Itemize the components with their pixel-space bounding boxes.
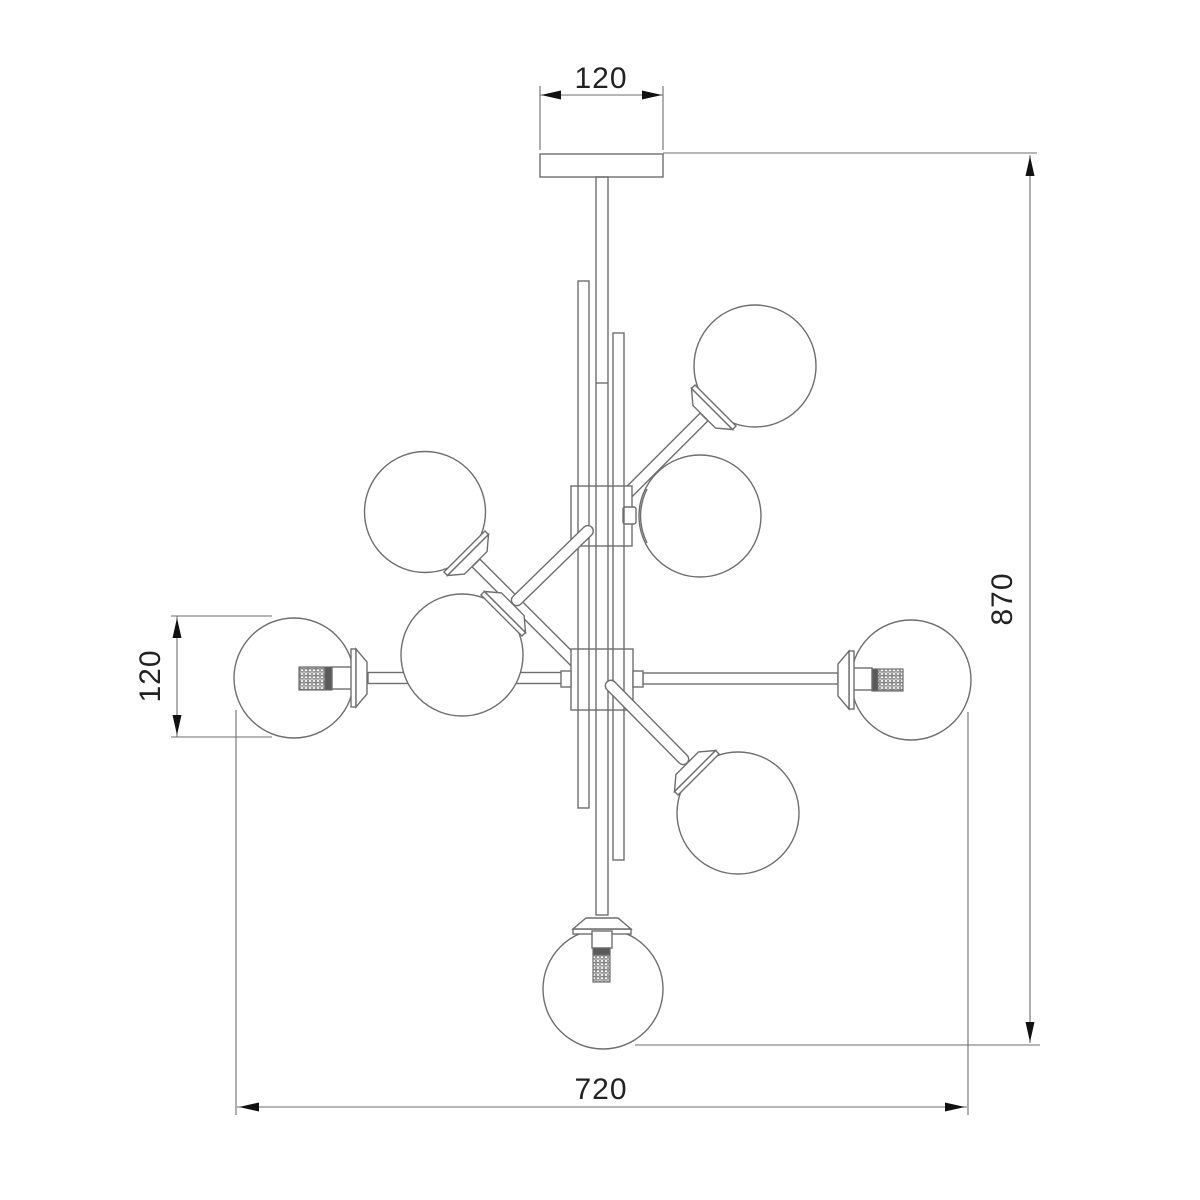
arrowhead-left-icon — [239, 1103, 259, 1112]
socket-holder — [592, 931, 612, 948]
upper-box-right-connector — [623, 507, 636, 524]
lower-box-left-connector — [561, 671, 571, 687]
canopy-width-label: 120 — [574, 62, 627, 95]
total-height-label: 870 — [986, 572, 1019, 625]
dimension-total-height: 870 — [635, 153, 1040, 1045]
socket-holder — [332, 667, 352, 689]
ceiling-plate — [540, 154, 663, 177]
technical-drawing-canvas: 120 870 120 720 — [0, 0, 1200, 1200]
bell-flange — [351, 649, 367, 707]
bulb-base-collar — [593, 948, 610, 955]
shade-diameter-label: 120 — [134, 649, 167, 702]
right-arm — [643, 673, 838, 684]
arrowhead-up-icon — [173, 618, 182, 638]
arrowhead-up-icon — [1026, 156, 1035, 176]
bell-flange — [838, 651, 854, 709]
bulb-base-collar — [872, 669, 878, 691]
arm-middle-globe — [509, 523, 595, 608]
dimension-canopy-width: 120 — [540, 62, 663, 150]
arm-lower-right-globe — [603, 678, 691, 767]
globe-center-right — [639, 455, 761, 577]
arrowhead-left-icon — [541, 91, 561, 100]
lower-box-right-connector — [633, 671, 643, 687]
dimension-total-width: 720 — [236, 710, 968, 1115]
arrowhead-down-icon — [173, 715, 182, 735]
chandelier-drawing: 120 870 120 720 — [0, 0, 1200, 1200]
right-tube — [613, 333, 624, 860]
arrowhead-right-icon — [945, 1103, 965, 1112]
bulb-base-collar — [325, 667, 332, 690]
total-width-label: 720 — [574, 1073, 627, 1106]
arrowhead-right-icon — [642, 91, 662, 100]
arrowhead-down-icon — [1026, 1022, 1035, 1042]
socket-holder — [852, 668, 872, 690]
diagonal-arms-over — [444, 385, 736, 795]
